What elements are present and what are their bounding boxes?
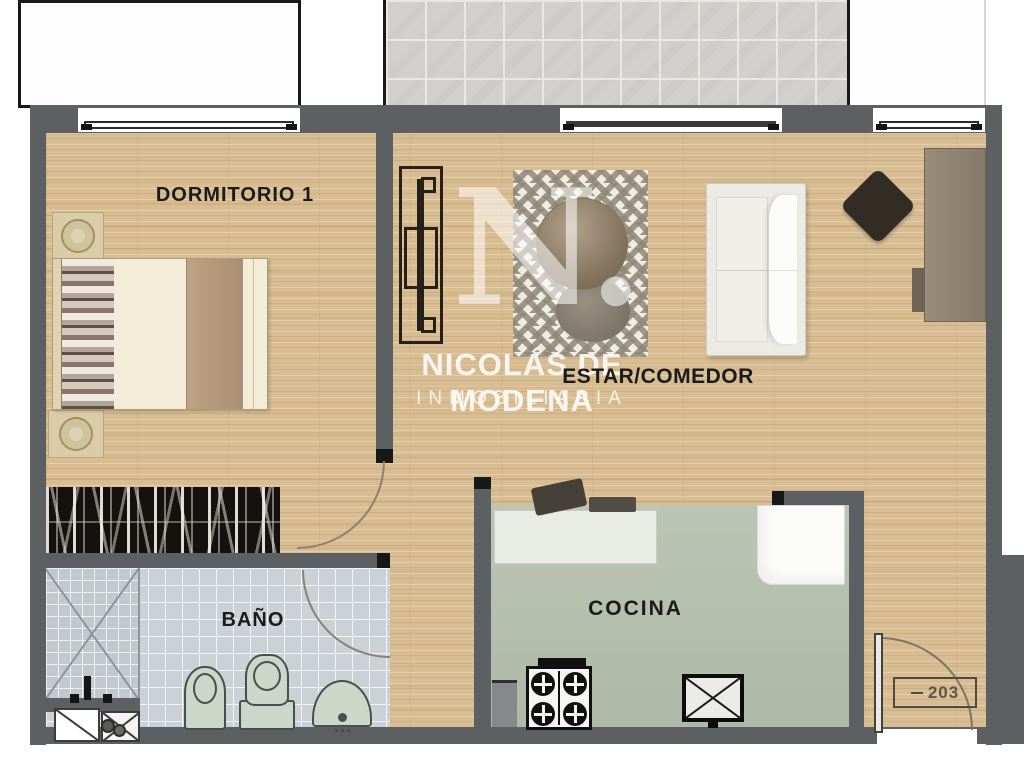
wall-left (30, 105, 46, 745)
exterior-area-right (853, 0, 986, 108)
shower-faucet-icon (70, 694, 79, 703)
kitchen-counter-icon (494, 510, 657, 564)
tv-unit-icon (399, 166, 443, 344)
stove-icon (526, 666, 592, 730)
wardrobe-closet-icon (46, 487, 280, 555)
unit-number: 203 (928, 683, 959, 703)
living-dining-label: ESTAR/COMEDOR (528, 365, 788, 389)
round-table-icon (536, 198, 628, 290)
wall-kitchen-left (474, 477, 491, 727)
desk-icon (924, 148, 986, 322)
bidet-icon (184, 666, 226, 730)
wall-end-cap (772, 491, 784, 505)
bedroom-label: DORMITORIO 1 (110, 184, 360, 207)
double-bed-icon (52, 258, 268, 410)
entry-door-leaf (874, 633, 883, 733)
entry-opening (877, 729, 977, 744)
nightstand-lamp-icon (48, 410, 104, 458)
patio-left (18, 0, 301, 108)
pouf-icon (556, 280, 630, 342)
shower-faucet-icon (84, 676, 91, 700)
nightstand-lamp-icon (52, 212, 104, 259)
shower-icon (46, 568, 140, 700)
wall-right-lower (1002, 555, 1024, 744)
kitchen-label: COCINA (553, 597, 718, 621)
floor-plan: 203 N. NICOLÁS DE MODENA INMOBILIARIA DO… (0, 0, 1024, 768)
washing-machine-icon (113, 724, 126, 737)
sofa-icon (706, 183, 806, 356)
wall-right (986, 105, 1002, 745)
kitchen-sink-icon (682, 674, 744, 722)
wall-kitchen-right (849, 491, 864, 727)
living-sliding-door-icon (560, 108, 782, 132)
unit-number-badge: 203 (893, 677, 977, 708)
microwave-icon (589, 497, 636, 512)
wall-bathroom-top (46, 553, 390, 568)
living-window-icon (873, 108, 985, 132)
wall-end-cap (377, 553, 390, 568)
tiled-terrace (383, 0, 850, 105)
kitchen-cabinet-icon (492, 680, 517, 727)
vent-shaft-icon (54, 708, 100, 742)
bedroom-window-icon (78, 108, 300, 132)
refrigerator-icon (757, 505, 845, 585)
toilet-icon (239, 654, 295, 730)
shower-faucet-icon (103, 694, 112, 703)
wall-bedroom-divider (376, 133, 393, 463)
desk-return-icon (912, 268, 925, 312)
bathroom-label: BAÑO (178, 609, 328, 632)
wall-end-cap (474, 477, 491, 489)
